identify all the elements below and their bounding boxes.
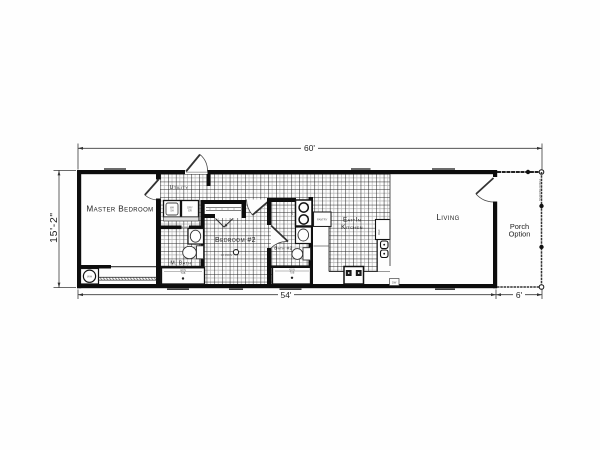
svg-text:DW: DW xyxy=(392,281,397,285)
svg-text:Bedroom #2: Bedroom #2 xyxy=(215,237,256,244)
svg-text:CF PROV: CF PROV xyxy=(221,253,233,257)
svg-text:WH: WH xyxy=(87,275,92,279)
svg-text:ER: ER xyxy=(188,209,192,213)
svg-text:Kitchen: Kitchen xyxy=(341,224,363,231)
svg-text:60': 60' xyxy=(304,143,315,153)
svg-text:TUB: TUB xyxy=(290,272,295,275)
svg-text:SH: SH xyxy=(170,209,174,213)
svg-text:REF: REF xyxy=(377,229,381,235)
svg-text:PANTRY: PANTRY xyxy=(317,218,328,222)
svg-text:Option: Option xyxy=(509,230,531,239)
svg-text:Eat-In: Eat-In xyxy=(343,217,361,224)
svg-text:Master Bedroom: Master Bedroom xyxy=(86,205,153,214)
svg-text:15'-2": 15'-2" xyxy=(49,212,60,243)
svg-text:VAN: VAN xyxy=(291,210,294,215)
svg-text:54': 54' xyxy=(281,290,292,300)
svg-text:Living: Living xyxy=(436,213,459,222)
svg-text:M. Bath: M. Bath xyxy=(170,261,191,267)
svg-text:Bath #2: Bath #2 xyxy=(274,246,292,252)
svg-text:PORCH DECKING: PORCH DECKING xyxy=(538,179,542,201)
svg-text:TUB: TUB xyxy=(181,272,186,275)
svg-text:6': 6' xyxy=(516,290,523,300)
svg-text:Utility: Utility xyxy=(170,185,189,191)
